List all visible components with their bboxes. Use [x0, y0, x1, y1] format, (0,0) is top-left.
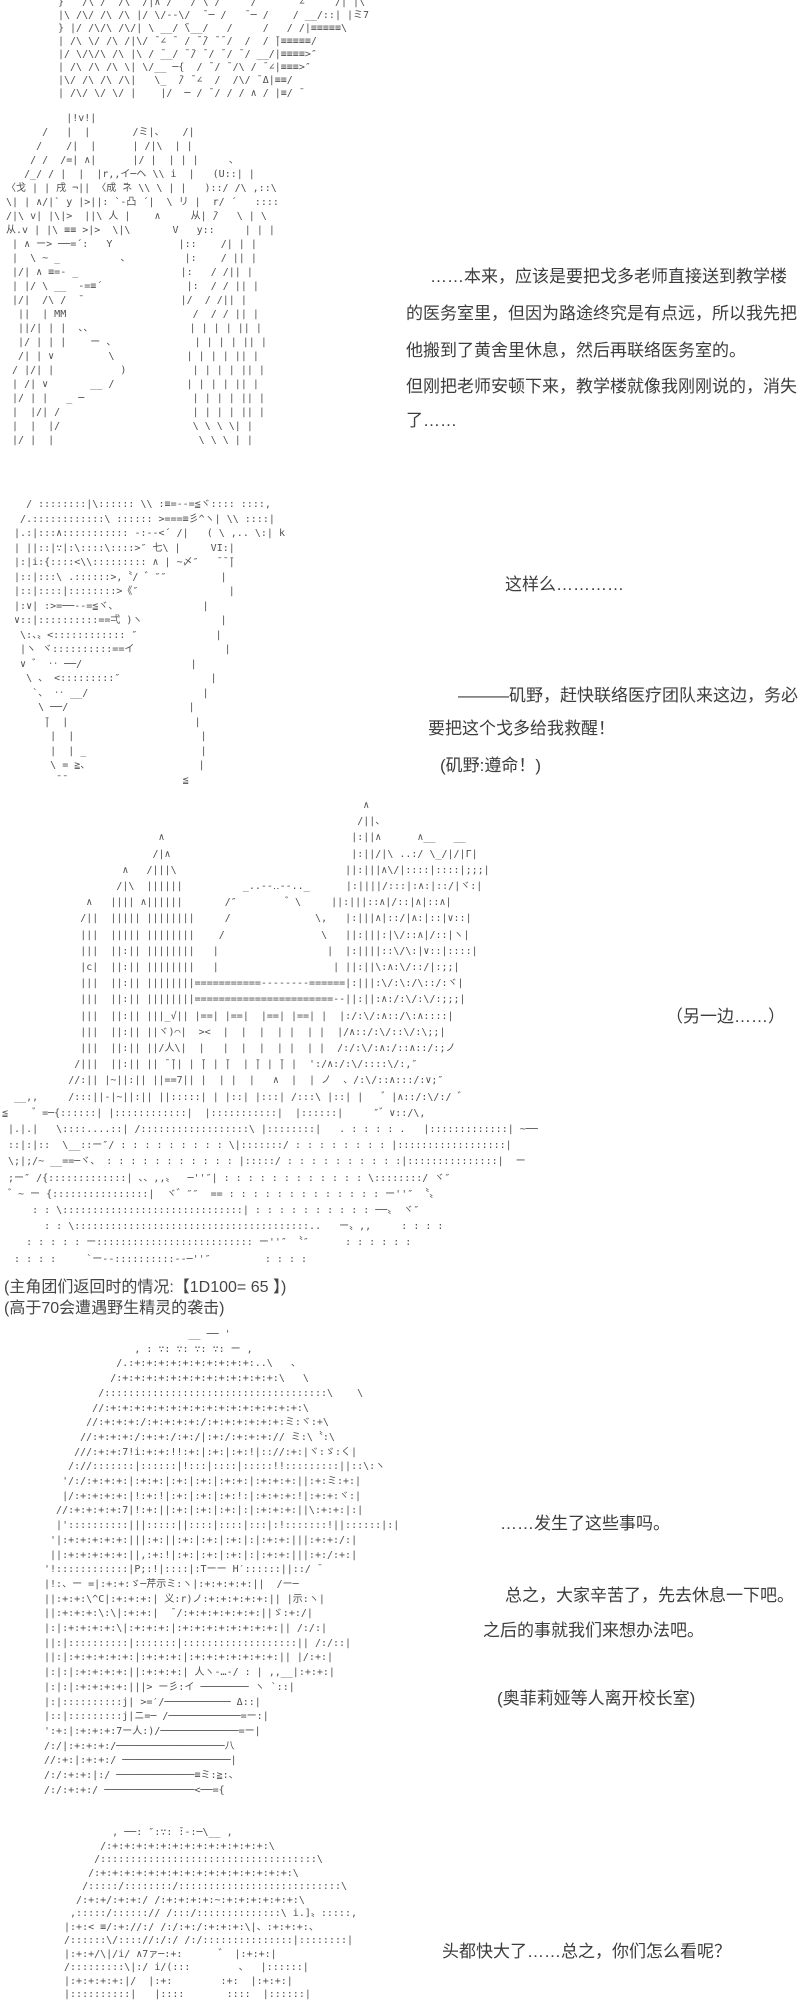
- reply-line: 这样么…………: [505, 570, 624, 595]
- ascii-art-character-4: , ──: ″:∵: ̄:‐:─\__ , /:+:+:+:+:+:+:+:+:…: [58, 1826, 357, 2002]
- scene-aside: （另一边……）: [666, 1002, 785, 1027]
- ascii-art-character-1: |!v!| / | | /ミ|、 /| / /| | | /|\ | | / /…: [0, 112, 279, 448]
- ascii-art-character-3: __ ── ' , : ∵: ∵: ∵: ∵: ー , /.:+:+:+:+:+…: [38, 1328, 399, 1799]
- monologue-line-2: 的医务室里，但因为路途终究是有点远，所以我先把: [406, 299, 797, 324]
- monologue-line-3: 他搬到了黄舍里休息，然后再联络医务室的。: [406, 336, 746, 361]
- command-line-1: ———矶野，赶快联络医疗团队来这边，务必: [458, 681, 798, 706]
- closing-line-2: 之后的事就我们来想办法吧。: [483, 1616, 704, 1641]
- command-ack-line: (矶野:遵命！): [440, 751, 541, 776]
- monologue-line-4: 但刚把老师安顿下来，教学楼就像我刚刚说的，消失: [406, 372, 797, 397]
- reaction-line: ……发生了这些事吗。: [500, 1509, 670, 1534]
- monologue-line-1: ……本来，应该是要把戈多老师直接送到教学楼: [430, 262, 787, 287]
- dice-rule-line: (高于70会遭遇野生精灵的袭击): [4, 1294, 224, 1318]
- closing-line-1: 总之，大家辛苦了，先去休息一下吧。: [505, 1581, 794, 1606]
- stage-direction: (奥菲莉娅等人离开校长室): [497, 1684, 695, 1709]
- ascii-art-top-banner: } /\ / /\ /|∧ / / ̄\ / / ∠ ̄ ̄ /| |\ |\ …: [58, 0, 369, 100]
- ascii-story-page: { "page": { "background": "#ffffff", "di…: [0, 0, 800, 2000]
- command-line-2: 要把这个戈多给我救醒！: [428, 714, 615, 739]
- final-question-line: 头都快大了……总之，你们怎么看呢？: [442, 1937, 731, 1962]
- monologue-line-5: 了……: [406, 406, 457, 431]
- ascii-art-castle: ∧ /||、 ∧ |:||∧ ∧__ __ /|∧: [2, 798, 538, 1268]
- ascii-art-character-2: / ::::::::|\:::::: \\ :≡=--=≦ヾ:::: ::::,…: [2, 498, 285, 788]
